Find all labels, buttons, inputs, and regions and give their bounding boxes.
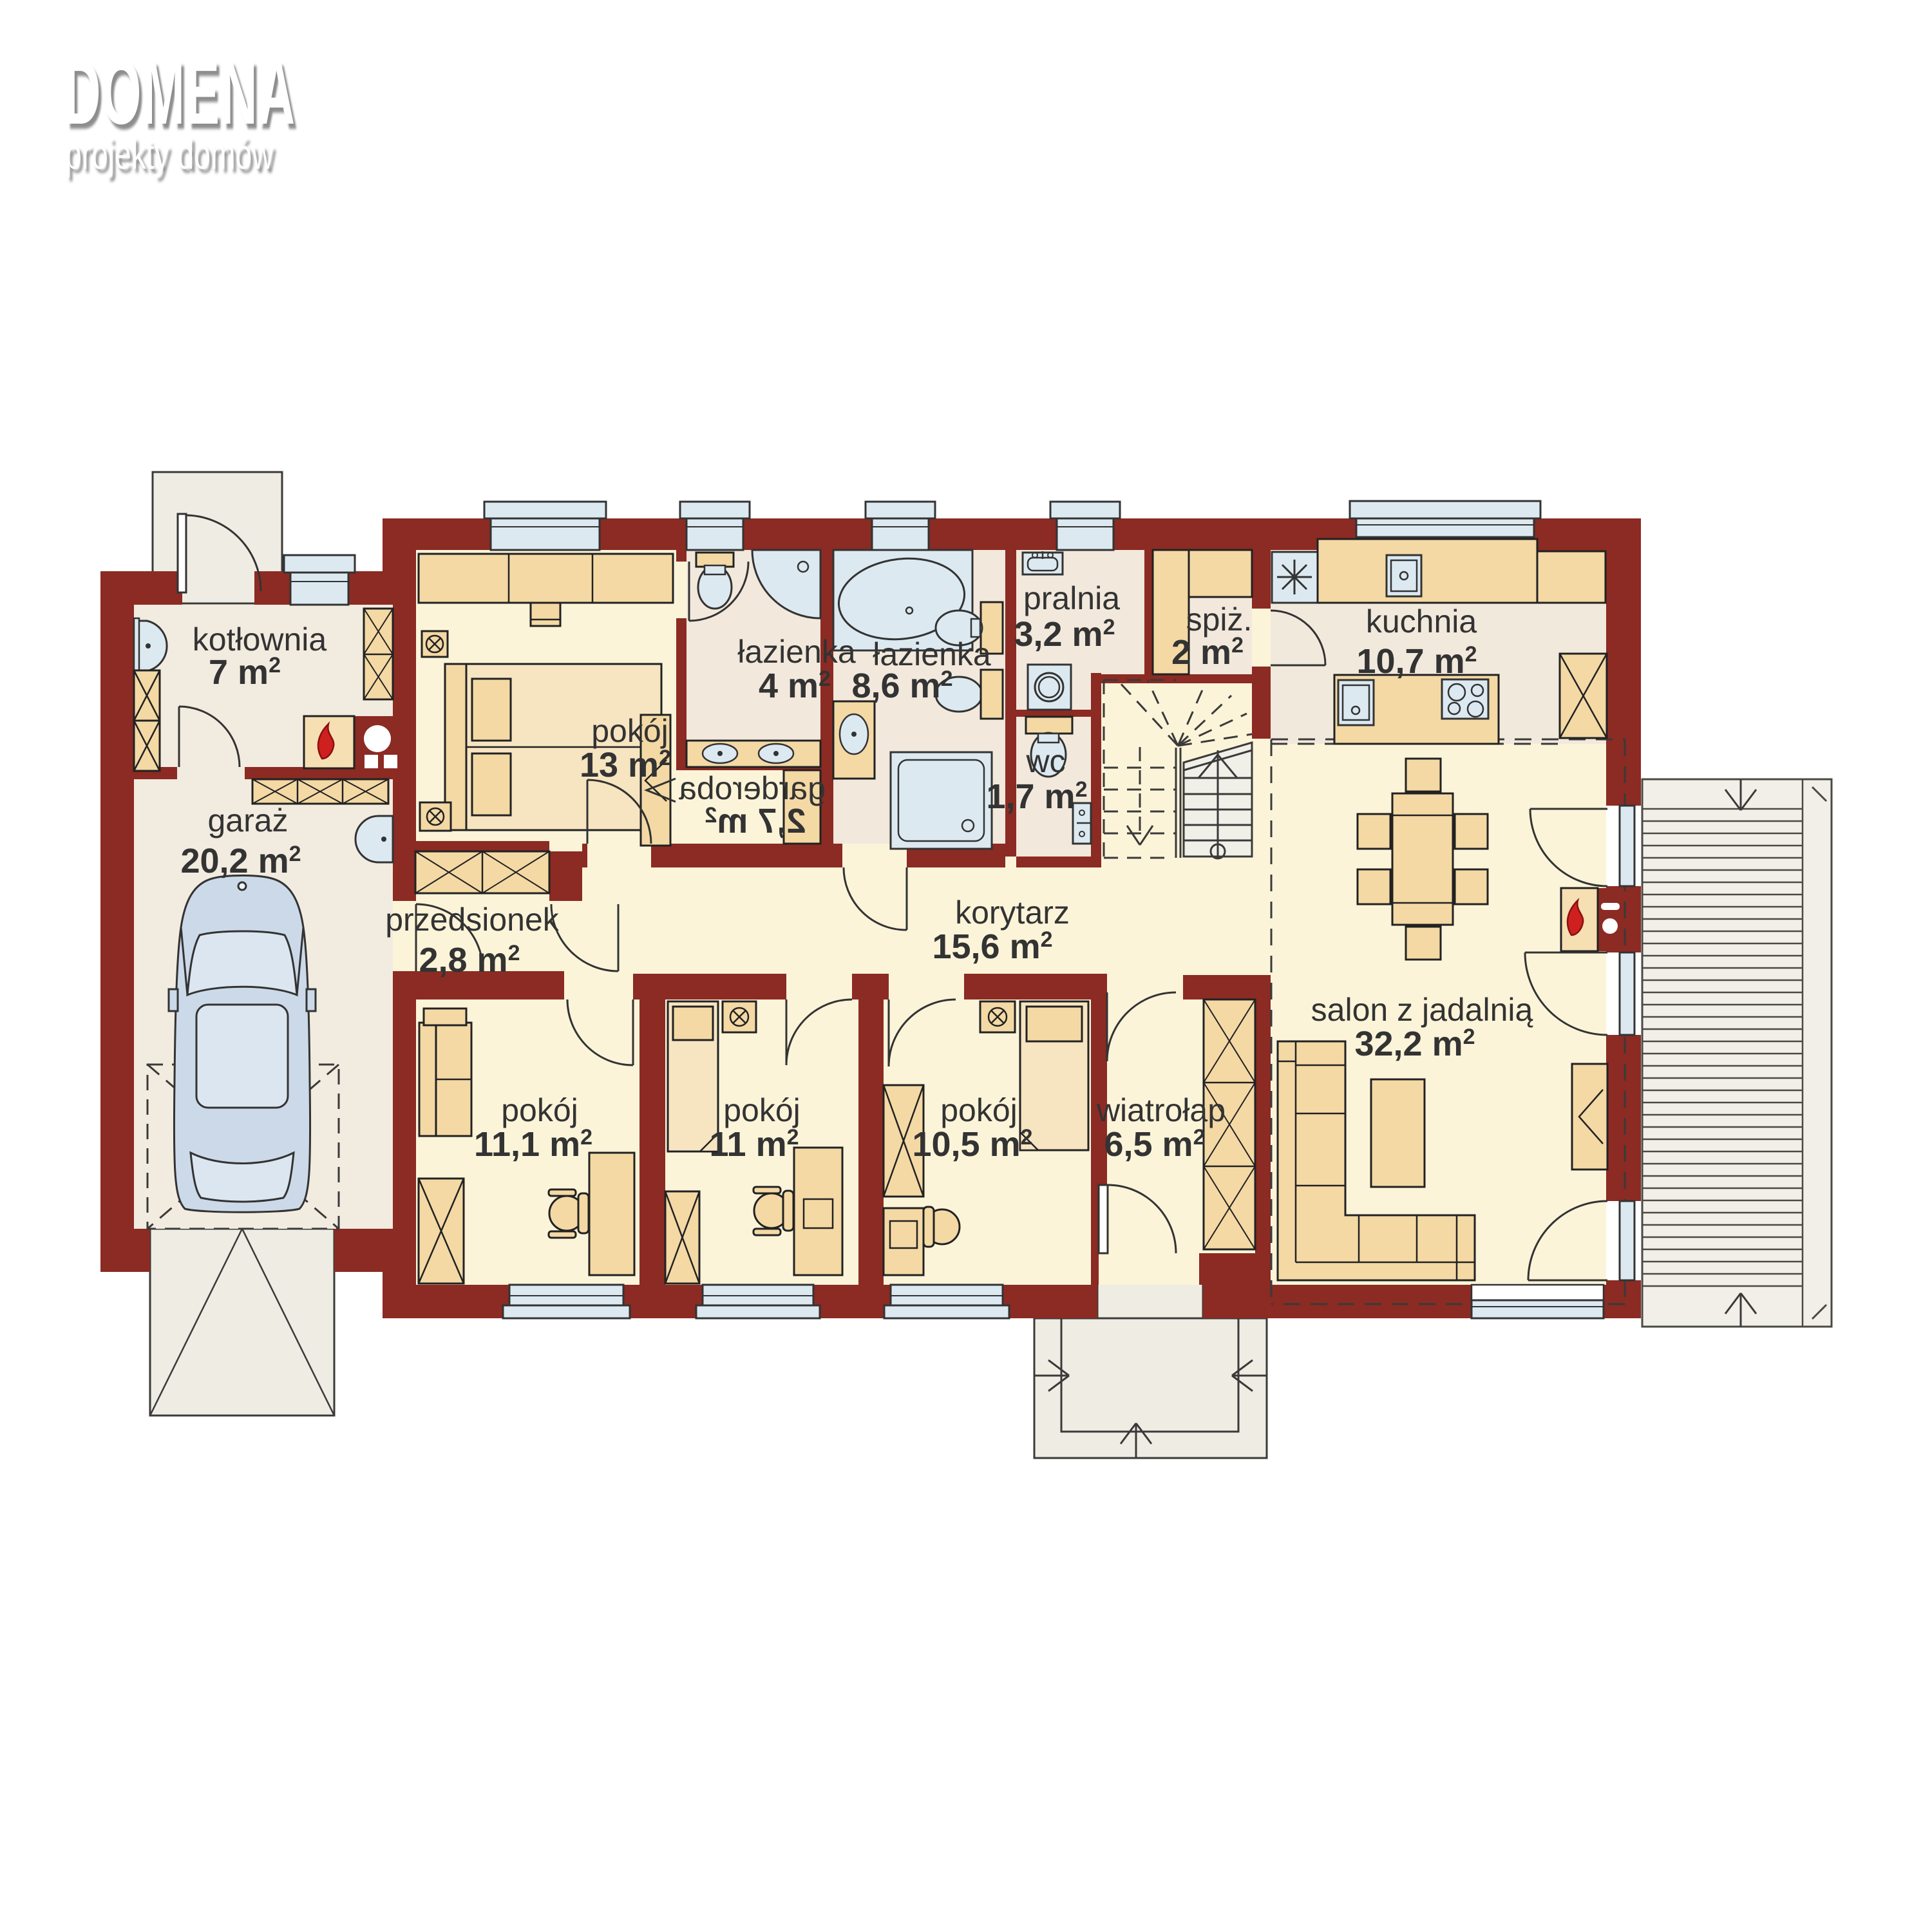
svg-text:garaż: garaż [207,802,288,838]
svg-text:spiż.: spiż. [1186,601,1253,638]
svg-text:wc: wc [1025,743,1065,779]
svg-text:8,6 m2: 8,6 m2 [851,667,952,705]
svg-text:korytarz: korytarz [955,895,1070,931]
svg-text:DOMENA: DOMENA [64,42,296,144]
svg-text:11,1 m2: 11,1 m2 [474,1125,592,1164]
svg-text:32,2 m2: 32,2 m2 [1354,1025,1475,1063]
svg-text:pokój: pokój [723,1092,800,1128]
svg-text:kotłownia: kotłownia [193,621,327,658]
svg-text:kuchnia: kuchnia [1366,603,1477,639]
svg-text:łazienka: łazienka [737,634,856,670]
svg-text:pokój: pokój [940,1092,1018,1128]
svg-text:10,5 m2: 10,5 m2 [912,1125,1032,1164]
svg-text:15,6 m2: 15,6 m2 [932,927,1052,966]
svg-text:6,5 m2: 6,5 m2 [1104,1125,1205,1164]
svg-text:11 m2: 11 m2 [709,1125,799,1164]
svg-text:salon z jadalnią: salon z jadalnią [1311,992,1533,1028]
svg-text:pralnia: pralnia [1023,580,1120,616]
svg-text:2,7 m2: 2,7 m2 [705,802,806,840]
svg-text:10,7 m2: 10,7 m2 [1356,642,1477,681]
svg-text:20,2 m2: 20,2 m2 [180,842,301,880]
svg-text:projekty domów: projekty domów [65,131,274,178]
svg-text:wiatrołap: wiatrołap [1096,1092,1226,1128]
svg-text:2,8 m2: 2,8 m2 [419,941,520,980]
svg-text:pokój: pokój [591,713,668,749]
svg-text:3,2 m2: 3,2 m2 [1014,615,1115,654]
svg-text:garderoba: garderoba [679,770,826,806]
svg-text:pokój: pokój [501,1092,578,1128]
svg-text:1,7 m2: 1,7 m2 [986,777,1087,816]
svg-text:13 m2: 13 m2 [580,746,671,784]
svg-text:przedsionek: przedsionek [385,902,560,938]
